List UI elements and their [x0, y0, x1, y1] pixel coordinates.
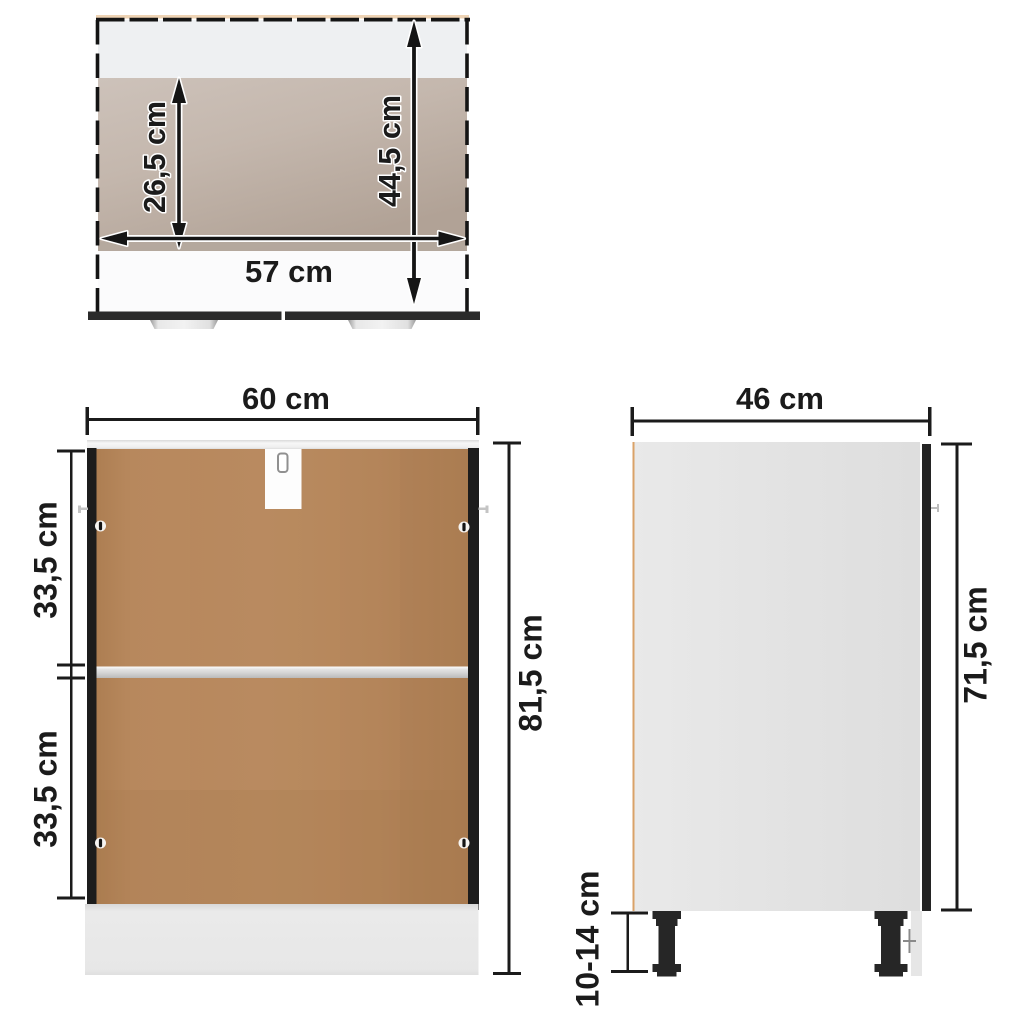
svg-text:33,5 cm: 33,5 cm	[27, 730, 63, 847]
svg-text:33,5 cm: 33,5 cm	[27, 501, 63, 618]
svg-text:10-14 cm: 10-14 cm	[569, 871, 605, 1008]
svg-text:44,5 cm: 44,5 cm	[373, 95, 407, 207]
svg-text:81,5 cm: 81,5 cm	[512, 614, 548, 731]
svg-text:46 cm: 46 cm	[736, 381, 824, 416]
svg-text:26,5 cm: 26,5 cm	[138, 101, 172, 213]
svg-text:57 cm: 57 cm	[245, 254, 333, 289]
svg-text:60 cm: 60 cm	[242, 381, 330, 416]
svg-text:71,5 cm: 71,5 cm	[957, 586, 993, 703]
